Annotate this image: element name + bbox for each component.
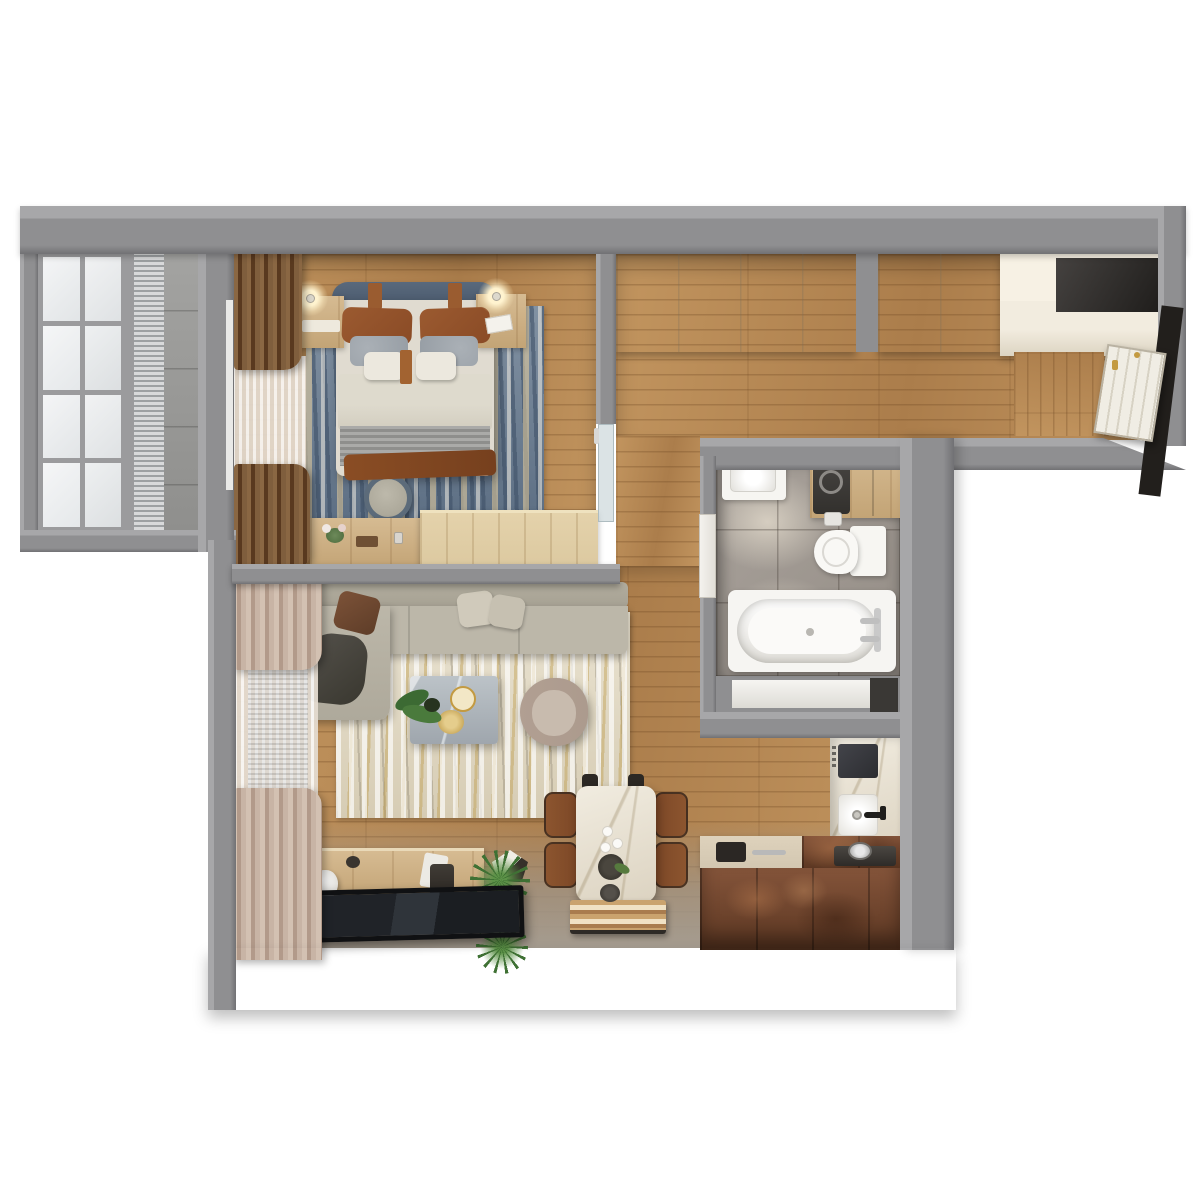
- white-pillow-right: [416, 352, 456, 380]
- bath-mixer-spout: [860, 618, 880, 624]
- table-cup-3: [600, 842, 611, 853]
- island-body: [700, 868, 900, 950]
- serving-mat: [570, 900, 666, 934]
- wardrobe-left: [616, 254, 856, 352]
- black-faucet-base: [880, 806, 886, 820]
- top-wall: [20, 206, 1186, 254]
- bedroom-hall-partition: [596, 254, 616, 424]
- left-wall: [208, 540, 236, 1010]
- table-plant-center: [424, 698, 440, 712]
- bathtub-drain: [806, 628, 814, 636]
- white-pillow-left: [364, 352, 404, 380]
- living-pleated-curtain-bottom: [232, 788, 322, 960]
- storage-niche: [1056, 258, 1158, 312]
- toilet-paper-holder: [824, 512, 842, 526]
- bedroom-window-sliver: [226, 300, 233, 490]
- table-lamp-right-base: [492, 292, 501, 301]
- balcony-left-wall: [20, 206, 38, 552]
- bath-mixer-bar: [874, 608, 881, 652]
- induction-hob: [838, 744, 878, 778]
- floor-plan-canvas: [0, 0, 1200, 1200]
- wardrobe-right: [878, 254, 1000, 352]
- window-pane: [43, 257, 80, 321]
- bed-duvet: [338, 374, 492, 430]
- headboard-strap-right: [448, 283, 462, 309]
- bedroom-curtain-lower: [234, 464, 310, 568]
- living-pleated-curtain-top: [232, 572, 322, 670]
- dresser-flower-bloom: [322, 524, 331, 533]
- bedroom-glass-door: [598, 424, 614, 522]
- low-divider-cabinet: [420, 510, 598, 568]
- hob-knobs: [832, 746, 836, 768]
- wardrobe-divider-wall: [856, 254, 878, 352]
- balcony-venetian-blinds: [134, 252, 164, 532]
- window-pane: [85, 326, 122, 390]
- bedroom-sheer: [232, 356, 306, 478]
- window-pane: [85, 395, 122, 459]
- stove-pot: [848, 842, 872, 860]
- entry-door-handle-gold: [1112, 360, 1118, 370]
- balcony-window-grid: [38, 252, 126, 532]
- bath-mixer-handle: [860, 636, 880, 642]
- balcony-tile-floor: [164, 252, 198, 530]
- nightstand-left-drawer: [302, 320, 340, 332]
- bed-brown-throw: [344, 449, 497, 480]
- dining-chair-4: [654, 842, 688, 888]
- bathroom-bottom-wall: [700, 712, 900, 738]
- dresser-flower-bloom2: [338, 524, 346, 532]
- corridor-floor: [616, 436, 700, 570]
- entry-door-hinge-gold: [1134, 352, 1140, 358]
- bedroom-living-low-wall: [232, 564, 620, 584]
- washing-machine-door-ring: [819, 470, 843, 494]
- sofa-cushion-beige2: [487, 593, 526, 630]
- gold-tray: [450, 686, 476, 712]
- entry-wood-panel: [1014, 352, 1104, 436]
- shelf-niche-dark-slot: [870, 678, 898, 712]
- glass-door-handle: [594, 428, 599, 444]
- gold-bowl: [438, 710, 464, 734]
- toilet-seat-ring: [822, 537, 850, 567]
- shelf-niche-board: [732, 680, 870, 708]
- dining-chair-3: [654, 792, 688, 838]
- table-cup-2: [612, 838, 623, 849]
- flat-tv-panel: [305, 885, 524, 943]
- armchair-seat: [532, 690, 576, 736]
- window-mullion: [126, 252, 134, 532]
- window-pane: [85, 257, 122, 321]
- window-pane: [43, 326, 80, 390]
- kitchen-sink-drain: [852, 810, 862, 820]
- dining-chair-1: [544, 792, 578, 838]
- table-lamp-left-base: [306, 294, 315, 303]
- table-bowl-small: [600, 884, 620, 902]
- bathroom-door: [699, 514, 716, 598]
- dresser-perfume-bottle: [394, 532, 403, 544]
- island-sink: [716, 842, 746, 862]
- table-cup-1: [602, 826, 613, 837]
- bottom-wall: [208, 948, 956, 1010]
- round-pouf: [364, 474, 412, 522]
- window-pane: [43, 463, 80, 527]
- window-pane: [85, 463, 122, 527]
- headboard-strap-left: [368, 283, 382, 309]
- island-handle: [752, 850, 786, 855]
- window-pane: [43, 395, 80, 459]
- bedroom-curtain-upper: [234, 250, 302, 370]
- dresser-tray: [356, 536, 378, 547]
- right-wall: [900, 438, 954, 950]
- bed-runner-strap: [400, 350, 412, 384]
- dining-chair-2: [544, 842, 578, 888]
- console-knob: [346, 856, 360, 868]
